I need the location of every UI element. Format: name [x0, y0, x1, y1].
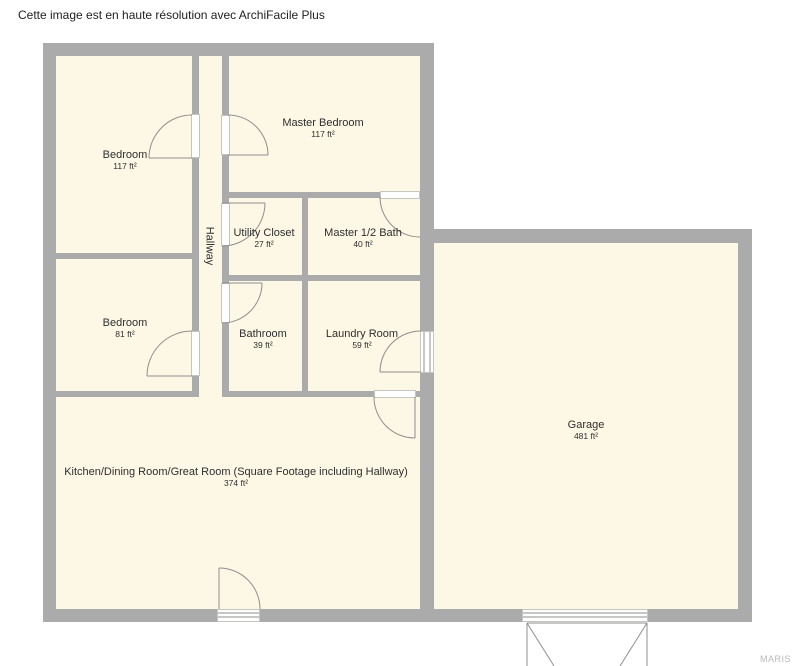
garage-door-threshold	[522, 609, 648, 622]
room-name: Bathroom	[239, 328, 287, 341]
wall-exterior-top	[43, 43, 434, 56]
room-label-bedroom-top: Bedroom 117 ft²	[103, 149, 148, 171]
wall-garage-right	[738, 229, 752, 622]
door-opening-master-half-bath	[380, 191, 420, 199]
garage-door-diagonal-left	[527, 623, 554, 666]
door-opening-bedroom-top	[191, 114, 200, 158]
room-label-master-half-bath: Master 1/2 Bath 40 ft²	[324, 227, 402, 249]
room-area: 81 ft²	[103, 329, 148, 339]
room-name: Kitchen/Dining Room/Great Room (Square F…	[64, 466, 408, 479]
door-opening-great-room	[374, 390, 416, 398]
door-opening-bedroom-bottom	[191, 331, 200, 376]
room-name: Bedroom	[103, 149, 148, 162]
room-name: Bedroom	[103, 317, 148, 330]
room-area: 27 ft²	[233, 239, 294, 249]
room-name: Laundry Room	[326, 328, 398, 341]
room-label-master-bedroom: Master Bedroom 117 ft²	[282, 117, 363, 139]
room-area: 40 ft²	[324, 239, 402, 249]
room-area: 59 ft²	[326, 340, 398, 350]
room-label-laundry-room: Laundry Room 59 ft²	[326, 328, 398, 350]
wall-bedroom-divider	[56, 253, 192, 259]
room-name: Master Bedroom	[282, 117, 363, 130]
room-area: 374 ft²	[64, 478, 408, 488]
room-name: Hallway	[203, 227, 216, 266]
wall-exterior-left	[43, 43, 56, 622]
door-opening-bathroom	[221, 283, 230, 323]
room-label-hallway: Hallway	[203, 227, 216, 266]
wall-garage-top	[434, 229, 752, 243]
room-area: 117 ft²	[103, 161, 148, 171]
wall-utility-bath-divider	[229, 275, 420, 281]
door-opening-master-bedroom	[221, 115, 230, 155]
watermark: MARIS	[760, 654, 791, 664]
room-label-bedroom-bottom: Bedroom 81 ft²	[103, 317, 148, 339]
entry-door-threshold	[217, 609, 260, 622]
room-area: 117 ft²	[282, 129, 363, 139]
room-area: 481 ft²	[568, 431, 605, 441]
room-label-great-room: Kitchen/Dining Room/Great Room (Square F…	[64, 466, 408, 488]
wall-bath-laundry-vertical	[302, 198, 308, 391]
door-opening-utility-closet	[221, 203, 230, 246]
room-area: 39 ft²	[239, 340, 287, 350]
garage-door-diagonal-right	[620, 623, 647, 666]
room-label-utility-closet: Utility Closet 27 ft²	[233, 227, 294, 249]
room-name: Garage	[568, 419, 605, 432]
room-name: Utility Closet	[233, 227, 294, 240]
door-opening-laundry-garage	[420, 331, 434, 373]
room-label-bathroom: Bathroom 39 ft²	[239, 328, 287, 350]
floor-plan: Bedroom 117 ft² Master Bedroom 117 ft² H…	[0, 0, 796, 666]
room-label-garage: Garage 481 ft²	[568, 419, 605, 441]
room-name: Master 1/2 Bath	[324, 227, 402, 240]
wall-bedroom-bottom	[56, 391, 192, 397]
